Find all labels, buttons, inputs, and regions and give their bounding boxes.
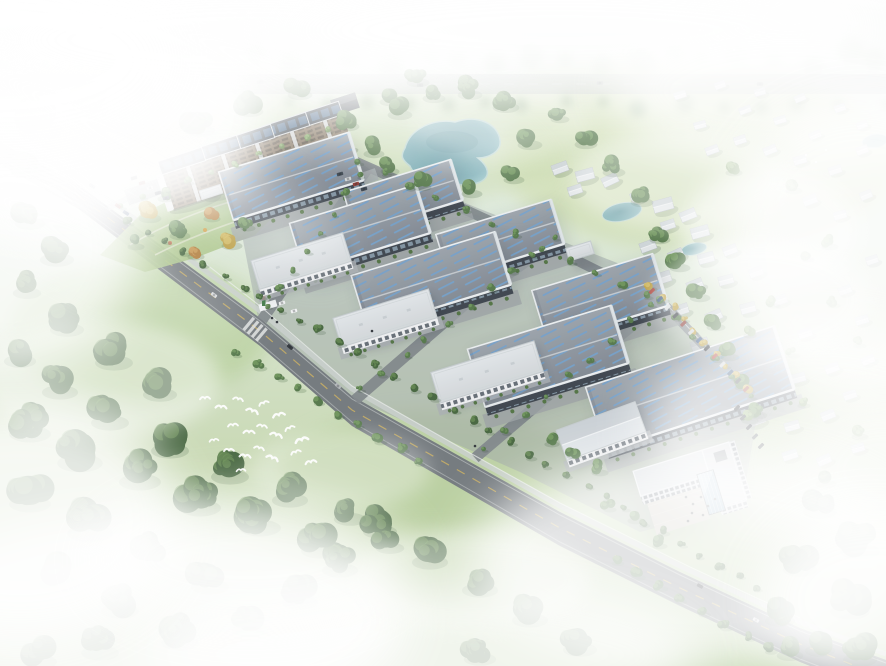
mist-clouds — [0, 0, 886, 666]
distant-bird — [187, 39, 189, 41]
distant-bird — [805, 154, 807, 156]
distant-bird — [733, 49, 735, 51]
distant-bird — [717, 35, 719, 37]
mist-patch — [250, 430, 430, 510]
distant-bird — [709, 47, 711, 49]
distant-bird — [204, 45, 206, 47]
distant-bird — [167, 29, 169, 31]
mist-patch — [570, 130, 790, 230]
distant-bird — [756, 39, 758, 41]
distant-bird — [147, 37, 149, 39]
distant-bird — [184, 51, 186, 53]
distant-bird — [825, 149, 827, 151]
distant-bird — [737, 27, 739, 29]
distant-bird — [164, 47, 166, 49]
mist-patch — [350, 530, 590, 630]
distant-bird — [207, 33, 209, 35]
aerial-rendering — [0, 0, 886, 666]
distant-bird — [129, 31, 131, 33]
scene-canvas — [0, 0, 886, 666]
mist-patch — [650, 240, 870, 360]
distant-bird — [699, 29, 701, 31]
distant-bird — [223, 51, 225, 53]
distant-bird — [815, 161, 817, 163]
distant-bird — [145, 55, 147, 57]
